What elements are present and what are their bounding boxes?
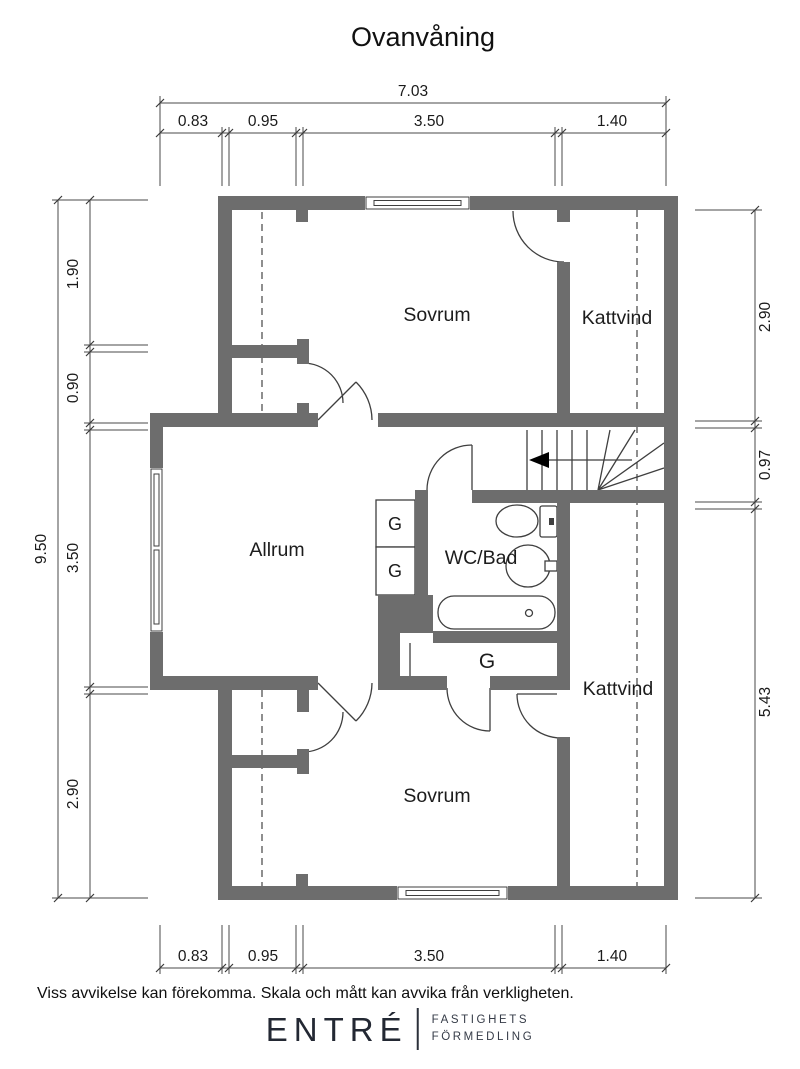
dim-right-seg-1: 0.97: [757, 450, 774, 480]
floor-plan: 7.03 0.83 0.95 3.50 1.40 9.50 1.90 0.90 …: [0, 0, 800, 1069]
dim-left-seg-1: 0.90: [65, 373, 82, 404]
toilet-icon: [496, 505, 557, 537]
window-left: [150, 468, 163, 632]
door-arc-closet-upper: [303, 363, 343, 403]
door-arc-sovrum-top: [356, 382, 372, 420]
door-leaf-sovrum-bottom: [318, 683, 356, 721]
room-label-closet-2: G: [388, 561, 402, 581]
room-label-closet-3: G: [479, 650, 495, 673]
brand-name: ENTRÉ: [266, 1013, 408, 1046]
room-labels: Sovrum Kattvind Allrum WC/Bad Kattvind S…: [249, 304, 653, 807]
dim-left-seg-0: 1.90: [65, 259, 82, 290]
brand-tagline: FASTIGHETS FÖRMEDLING: [432, 1012, 535, 1047]
bathtub-icon: [438, 596, 555, 629]
doors: [303, 211, 564, 752]
dim-right-seg-0: 2.90: [757, 302, 774, 333]
dim-bottom-seg-2: 3.50: [414, 948, 445, 965]
door-arc-sovrum-bottom: [356, 683, 372, 721]
brand-logo: ENTRÉ FASTIGHETS FÖRMEDLING: [266, 1008, 535, 1050]
dim-bottom-seg-1: 0.95: [248, 948, 278, 965]
room-label-closet-1: G: [388, 514, 402, 534]
window-top: [365, 196, 470, 210]
door-arc-wcbad: [427, 445, 472, 490]
room-label-kattvind-top: Kattvind: [582, 307, 652, 329]
dim-top-seg-2: 3.50: [414, 113, 445, 130]
dimension-bottom: 0.83 0.95 3.50 1.40: [156, 925, 670, 974]
dimension-top: 7.03 0.83 0.95 3.50 1.40: [156, 83, 670, 186]
dim-left-total: 9.50: [33, 534, 50, 565]
dimension-right: 2.90 0.97 5.43: [695, 206, 774, 902]
room-label-allrum: Allrum: [249, 539, 304, 561]
dim-bottom-seg-3: 1.40: [597, 948, 628, 965]
door-arc-closet-g3: [447, 688, 490, 731]
dim-left-seg-3: 2.90: [65, 779, 82, 810]
staircase: [527, 430, 664, 490]
dim-top-seg-1: 0.95: [248, 113, 278, 130]
stairs-direction-arrow-icon: [529, 452, 549, 468]
door-arc-kattvind-top: [513, 211, 564, 262]
dim-right-seg-2: 5.43: [757, 687, 774, 717]
dim-top-total: 7.03: [398, 83, 428, 100]
disclaimer-text: Viss avvikelse kan förekomma. Skala och …: [37, 985, 574, 1003]
dim-left-seg-2: 3.50: [65, 543, 82, 574]
brand-divider: [417, 1008, 419, 1050]
room-label-sovrum-top: Sovrum: [403, 304, 470, 326]
door-leaf-sovrum-top: [318, 382, 356, 420]
door-arc-closet-lower: [303, 712, 343, 752]
door-arc-kattvind-bottom: [517, 694, 561, 738]
dim-bottom-seg-0: 0.83: [178, 948, 208, 965]
window-bottom: [397, 886, 508, 900]
room-label-sovrum-bottom: Sovrum: [403, 785, 470, 807]
brand-tagline-line1: FASTIGHETS: [432, 1012, 535, 1029]
dimension-left: 9.50 1.90 0.90 3.50 2.90: [33, 196, 148, 902]
room-label-wc-bad: WC/Bad: [445, 547, 518, 569]
brand-tagline-line2: FÖRMEDLING: [432, 1029, 535, 1046]
dim-top-seg-3: 1.40: [597, 113, 628, 130]
room-label-kattvind-right: Kattvind: [583, 678, 653, 700]
dim-top-seg-0: 0.83: [178, 113, 208, 130]
